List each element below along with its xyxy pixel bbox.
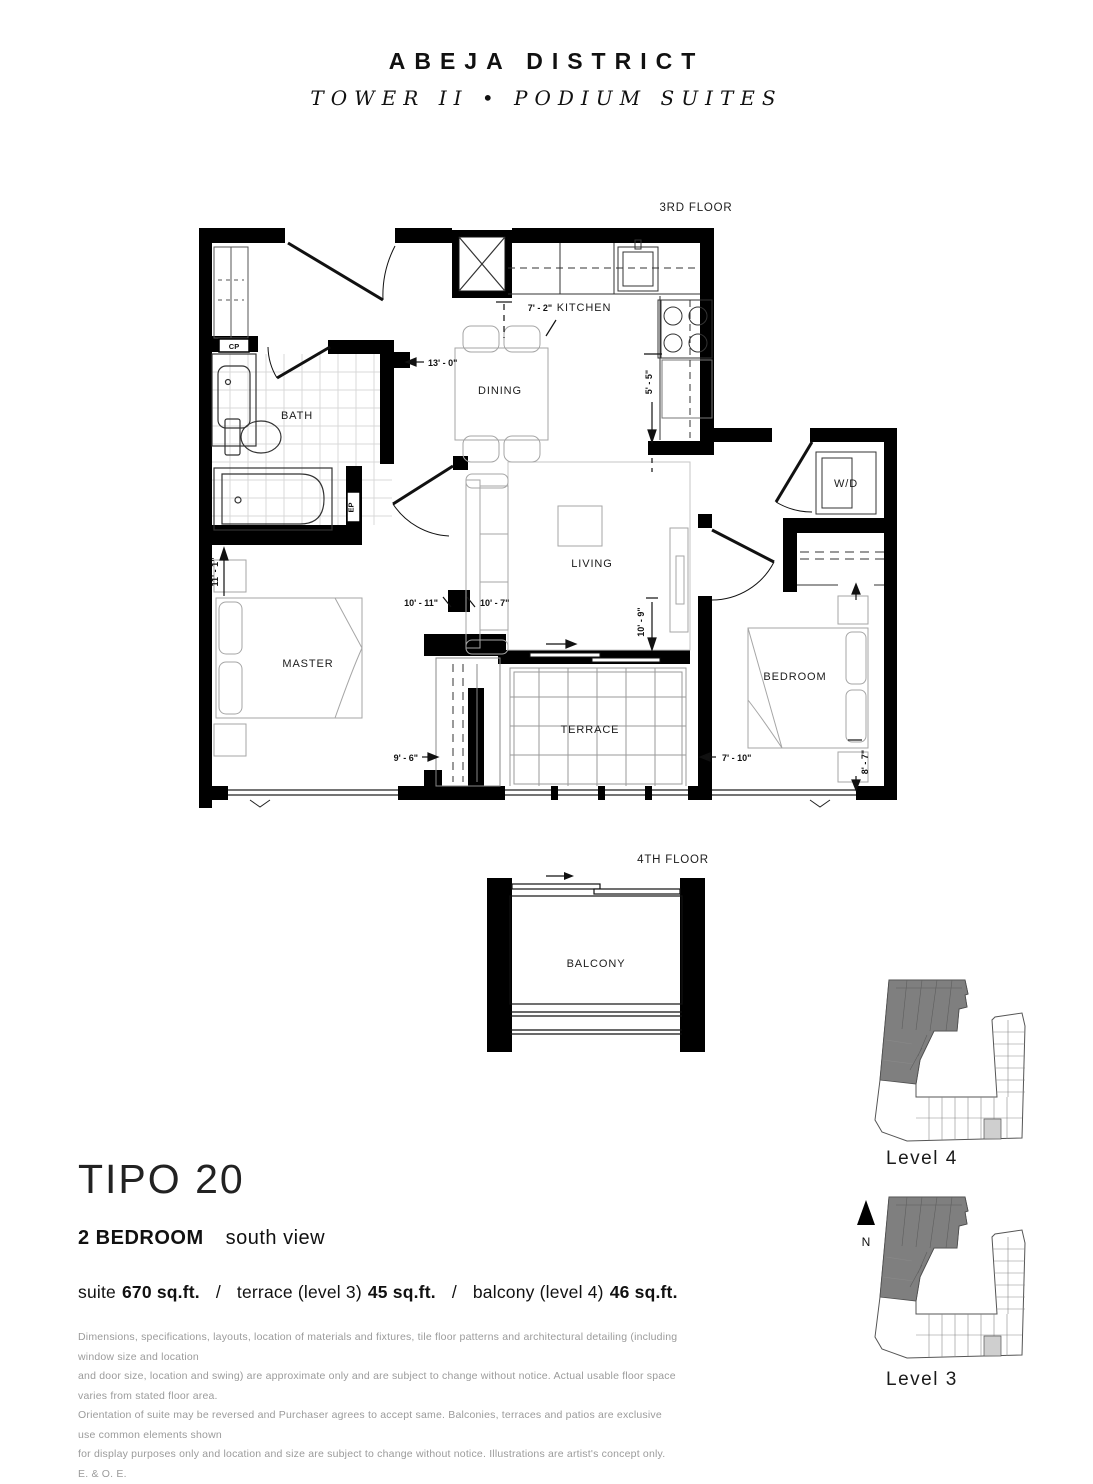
label-kitchen: KITCHEN <box>557 302 612 314</box>
room-labels: KITCHEN DINING BATH LIVING MASTER BEDROO… <box>281 302 858 736</box>
suite-type: 2 BEDROOM <box>78 1227 204 1249</box>
area-separator: / <box>452 1282 457 1302</box>
walls <box>199 228 897 808</box>
label-dining: DINING <box>478 385 522 397</box>
area-label-balcony: balcony (level 4) <box>473 1282 604 1302</box>
sofa <box>466 474 508 654</box>
label-bath: BATH <box>281 410 313 422</box>
tv-console <box>670 528 688 632</box>
bedroom-bed <box>748 596 868 782</box>
cp-tag: CP <box>219 339 249 352</box>
area-value-suite: 670 sq.ft. <box>122 1282 200 1302</box>
svg-text:10' - 7": 10' - 7" <box>480 598 509 608</box>
elevator-shaft <box>459 237 505 291</box>
bedroom-closet <box>797 552 884 585</box>
label-balcony: BALCONY <box>567 958 626 970</box>
label-bedroom: BEDROOM <box>763 671 826 683</box>
svg-text:7' - 10": 7' - 10" <box>722 753 751 763</box>
toilet <box>225 419 240 455</box>
balcony-plan-4th: 4TH FLOOR BALCONY <box>487 854 709 1052</box>
label-wd: W/D <box>834 478 858 490</box>
label-master: MASTER <box>282 658 333 670</box>
suite-view: south view <box>226 1227 326 1249</box>
area-label-terrace: terrace (level 3) <box>237 1282 362 1302</box>
disclaimer-line: Orientation of suite may be reversed and… <box>78 1406 678 1445</box>
disclaimer-line: and door size, location and swing) are a… <box>78 1367 678 1406</box>
floor-label-4th: 4TH FLOOR <box>637 854 709 866</box>
kitchen-sink <box>618 247 658 291</box>
svg-text:7' - 2": 7' - 2" <box>528 303 552 313</box>
disclaimer-line: Dimensions, specifications, layouts, loc… <box>78 1328 678 1367</box>
svg-text:8' - 7": 8' - 7" <box>860 750 870 774</box>
svg-text:10' - 11": 10' - 11" <box>404 598 438 608</box>
label-north: N <box>862 1235 871 1249</box>
svg-text:CP: CP <box>229 342 239 351</box>
kitchen-fixtures <box>508 240 712 440</box>
suite-type-line: 2 BEDROOMsouth view <box>78 1227 325 1250</box>
bath-tile-grid <box>212 354 392 525</box>
keyplan-level3: N Level 3 <box>857 1197 1025 1390</box>
floor-label-3rd: 3RD FLOOR <box>659 202 732 214</box>
label-living: LIVING <box>571 558 612 570</box>
svg-text:9' - 6": 9' - 6" <box>394 753 418 763</box>
suite-areas: suite670 sq.ft./terrace (level 3)45 sq.f… <box>78 1282 678 1303</box>
area-value-terrace: 45 sq.ft. <box>368 1282 436 1302</box>
svg-text:EP: EP <box>347 502 356 512</box>
floor-plan-3rd: 3RD FLOOR <box>199 202 897 808</box>
ep-tag: EP <box>347 492 361 522</box>
area-label-suite: suite <box>78 1282 116 1302</box>
keyplan-level4: Level 4 <box>875 980 1025 1169</box>
entry-closet <box>214 247 248 338</box>
coffee-table <box>558 506 602 546</box>
svg-text:13' - 0": 13' - 0" <box>428 358 457 368</box>
suite-name: TIPO 20 <box>78 1156 245 1203</box>
label-level4: Level 4 <box>886 1148 958 1169</box>
dimensions: 13' - 0" 7' - 2" 5' - 5" 11' - 1" 10' - … <box>210 302 870 790</box>
area-separator: / <box>216 1282 221 1302</box>
svg-text:11' - 1": 11' - 1" <box>210 558 220 587</box>
disclaimer: Dimensions, specifications, layouts, loc… <box>78 1328 678 1484</box>
svg-text:5' - 5": 5' - 5" <box>644 370 654 394</box>
north-arrow-icon <box>857 1200 875 1225</box>
svg-text:10' - 9": 10' - 9" <box>636 607 646 636</box>
label-level3: Level 3 <box>886 1369 958 1390</box>
windows <box>228 786 856 807</box>
label-terrace: TERRACE <box>561 724 620 736</box>
area-value-balcony: 46 sq.ft. <box>610 1282 678 1302</box>
